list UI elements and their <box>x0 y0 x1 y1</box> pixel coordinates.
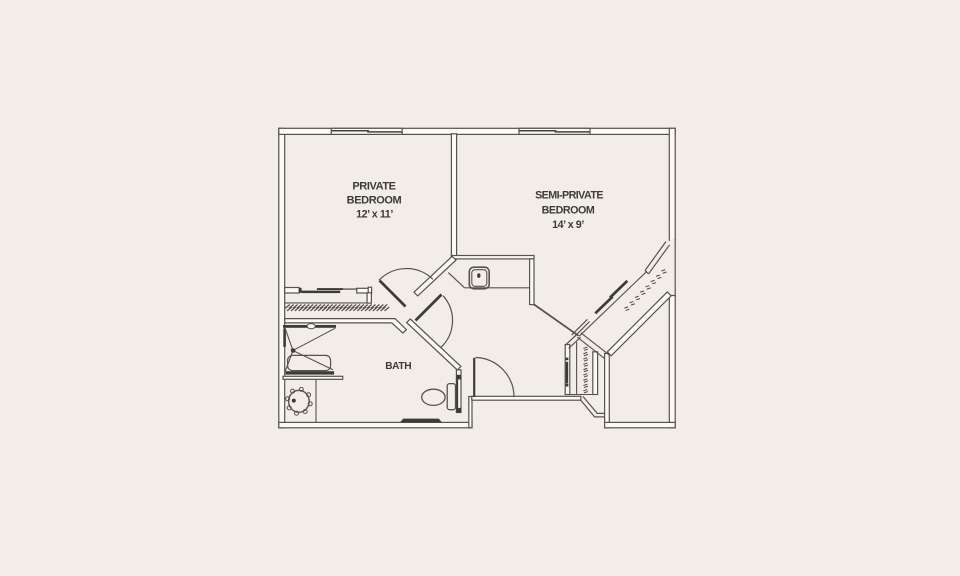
svg-text:SEMI-PRIVATE: SEMI-PRIVATE <box>535 189 603 201</box>
svg-text:BEDROOM: BEDROOM <box>347 194 402 206</box>
svg-text:BATH: BATH <box>385 361 411 372</box>
svg-text:BEDROOM: BEDROOM <box>542 204 595 216</box>
svg-text:12’ x 11’: 12’ x 11’ <box>356 208 393 220</box>
svg-text:14’ x 9’: 14’ x 9’ <box>552 219 584 231</box>
svg-text:PRIVATE: PRIVATE <box>352 180 395 192</box>
